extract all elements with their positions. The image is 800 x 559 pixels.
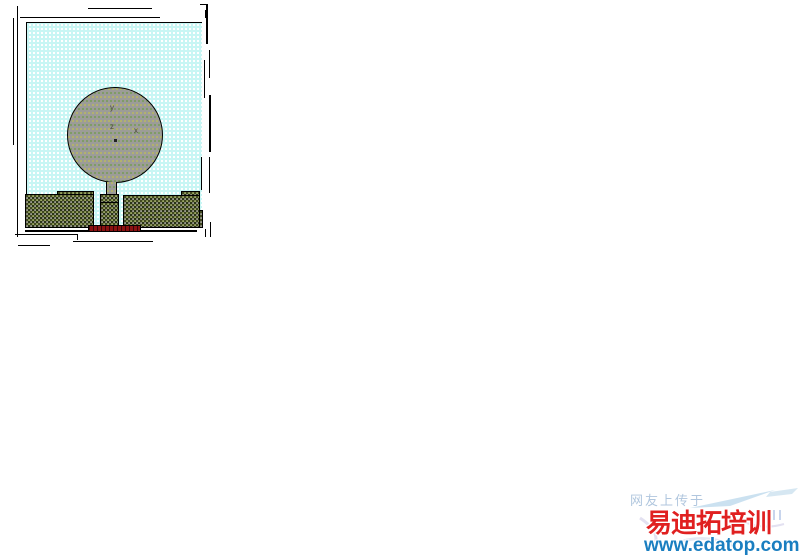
border-sketch-line — [73, 241, 153, 242]
border-sketch-line — [15, 234, 77, 235]
border-sketch-line — [13, 18, 14, 145]
axis-label-z: z — [110, 123, 114, 131]
watermark-url: www.edatop.com — [644, 535, 800, 557]
border-sketch-line — [209, 95, 211, 152]
border-sketch-line — [209, 157, 210, 193]
circular-patch — [67, 87, 163, 183]
ground-plane-right — [123, 195, 200, 228]
ground-plane-right-ext — [199, 210, 203, 228]
border-sketch-line — [205, 229, 206, 237]
axis-label-x: x — [134, 127, 138, 135]
watermark: 网友上传于 易迪拓培训 www.edatop.com — [620, 486, 800, 559]
border-sketch-line — [77, 234, 78, 240]
feed-segment-divider — [100, 202, 119, 203]
border-sketch-line — [201, 157, 202, 190]
feed-line-lower — [100, 194, 119, 228]
border-sketch-line — [204, 60, 205, 98]
border-sketch-line — [18, 245, 50, 246]
border-sketch-line — [17, 6, 18, 237]
ground-plane-left — [25, 194, 94, 228]
border-sketch-line — [205, 10, 208, 18]
antenna-model-figure: y z x — [0, 0, 230, 260]
border-sketch-line — [210, 222, 211, 237]
feed-port — [88, 225, 141, 232]
border-sketch-line — [209, 50, 210, 78]
page-canvas: y z x 网友上传 — [0, 0, 800, 559]
origin-marker — [114, 139, 117, 142]
border-sketch-line — [20, 17, 160, 18]
axis-label-y: y — [110, 104, 114, 112]
border-sketch-line — [88, 8, 152, 9]
